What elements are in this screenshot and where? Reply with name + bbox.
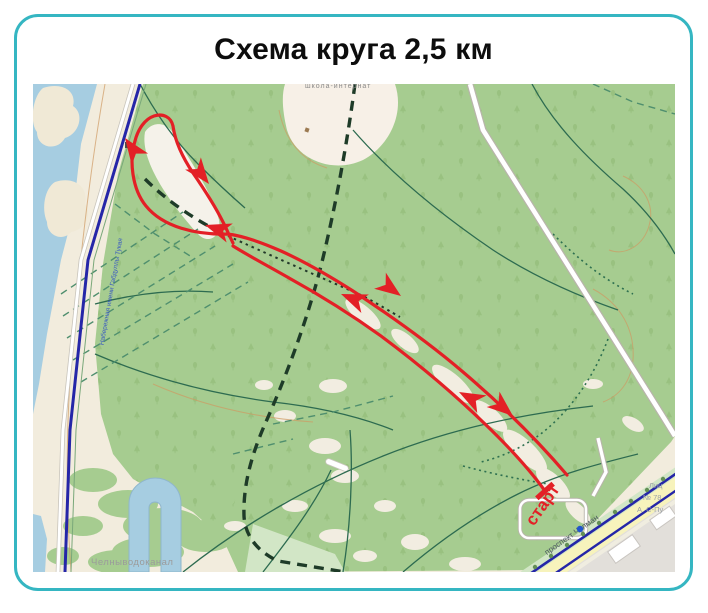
lyceum-label-line1: Лиц: [649, 481, 663, 490]
page: { "card": { "title": "Схема круга 2,5 км…: [0, 0, 708, 613]
map-card: Схема круга 2,5 км: [14, 14, 693, 591]
school-label: школа-интернат: [305, 84, 371, 90]
lyceum-label-line2: № 78: [643, 493, 661, 502]
poi-dot: [577, 526, 583, 532]
lyceum-label-line3: А. С-Пу: [637, 505, 663, 514]
map-svg: школа-интернат Набережная имени Габдуллы…: [33, 84, 675, 572]
map-container: школа-интернат Набережная имени Габдуллы…: [33, 84, 675, 572]
page-title: Схема круга 2,5 км: [17, 33, 690, 67]
waterworks-label: Челныводоканал: [91, 557, 173, 568]
